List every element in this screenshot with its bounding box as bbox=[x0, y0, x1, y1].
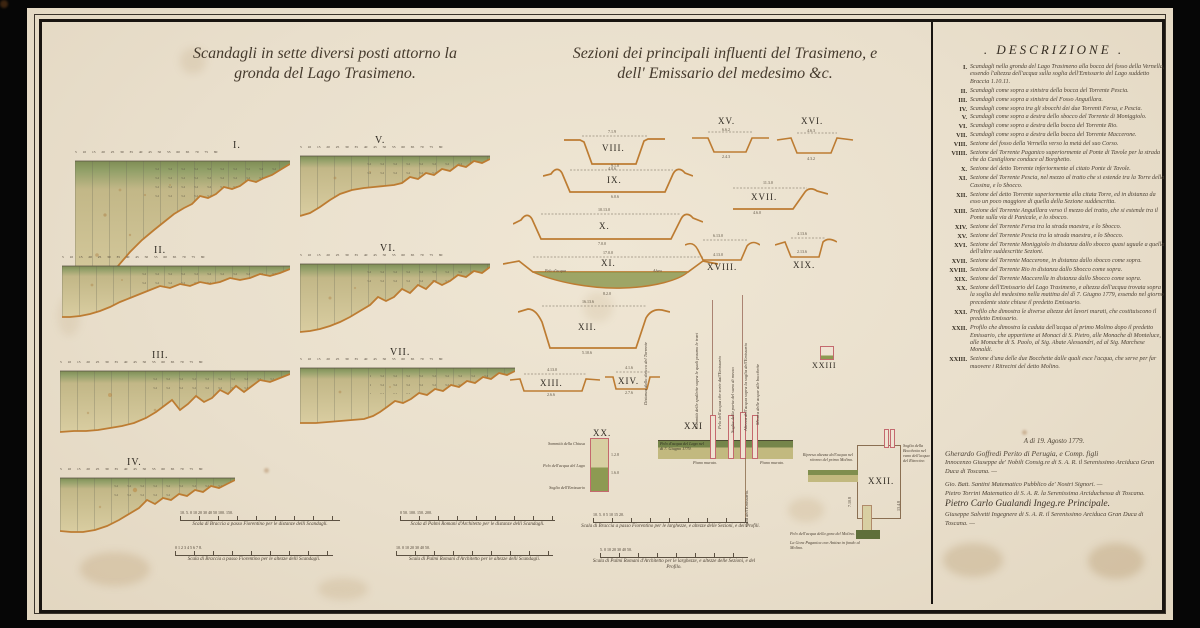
section-xiii: 4.13.0 XIII. 2.6.6 bbox=[510, 370, 600, 398]
xxi-rotated-note-1: Sommità delle spallette sopra le quali p… bbox=[694, 333, 699, 429]
signature-line: Gherardo Goffredi Perito di Perugia, e C… bbox=[945, 449, 1163, 458]
entry-numeral: XXIII. bbox=[943, 356, 967, 371]
scale-bar-palmi-altezze: 10. 0 10 20 30 40 50. Scala di Palmi Rom… bbox=[396, 545, 553, 571]
entry-text: Sezione dell'Emissario del Lago Trasimen… bbox=[970, 285, 1165, 307]
signature-line: Gio. Batt. Santini Matematico Pubblico d… bbox=[945, 480, 1163, 489]
section-drawing bbox=[775, 126, 855, 164]
section-x: 10.13.0 X. 7.0.0 bbox=[513, 208, 703, 248]
description-entry: VIIII. Sezione del Torrente Paganico sup… bbox=[943, 150, 1165, 165]
signature-block: A dì 19. Agosto 1779. Gherardo Goffredi … bbox=[945, 437, 1163, 528]
section-xxiii-label: XXIII bbox=[812, 361, 837, 370]
entry-numeral: XIII. bbox=[943, 208, 967, 223]
xxii-right-note: Soglia della Bocchetta nel vano dell'acq… bbox=[903, 443, 935, 463]
entry-numeral: XVI. bbox=[943, 242, 967, 257]
xxi-rotated-note-5: Misura delle acque alle bocchette bbox=[755, 364, 760, 425]
xx-measure-2: 1.6.0 bbox=[611, 470, 619, 475]
xx-measure-1: 1.2.8 bbox=[611, 452, 619, 457]
profile-drawing bbox=[60, 365, 290, 437]
entry-text: Scandagli come sopra a destra della bocc… bbox=[970, 123, 1165, 130]
description-entry: VI. Scandagli come sopra a destra della … bbox=[943, 123, 1165, 130]
scale-caption: Scala di Braccia a passo Fiorentino per … bbox=[578, 524, 764, 530]
xxii-sluice-mark bbox=[884, 429, 889, 448]
section-label: XVII. bbox=[751, 192, 777, 202]
section-label: XV. bbox=[718, 116, 735, 126]
scale-bar-palmi-sezioni: 5. 0 10 20 30 40 50. Scala di Palmi Roma… bbox=[600, 547, 748, 577]
xxii-measure-left: 7.10.8 bbox=[847, 497, 852, 507]
title-middle-line1: Sezioni dei principali influenti del Tra… bbox=[520, 44, 930, 64]
channel-bed-note: Alveo bbox=[653, 268, 662, 273]
entry-numeral: XV. bbox=[943, 233, 967, 240]
description-entry: XVIII. Sezione del Torrente Rio in dista… bbox=[943, 267, 1165, 274]
entry-text: Scandagli come sopra a sinistra del Foss… bbox=[970, 97, 1165, 104]
waterline-note: Pelo d'acqua bbox=[545, 268, 566, 273]
description-entry: XX. Sezione dell'Emissario del Lago Tras… bbox=[943, 285, 1165, 307]
entry-numeral: XVIII. bbox=[943, 267, 967, 274]
scale-line bbox=[593, 518, 748, 523]
section-label: XIX. bbox=[793, 260, 815, 270]
xxiii-bocchetta-square bbox=[820, 346, 834, 360]
section-label: XII. bbox=[578, 322, 597, 332]
entry-text: Sezione del Torrente Pescia, nel mezzo a… bbox=[970, 175, 1165, 190]
dim-bottom: 4.3.2 bbox=[807, 156, 815, 161]
panel-divider-line bbox=[931, 22, 933, 604]
description-entry: XVI. Sezione del Torrente Moniggiolo in … bbox=[943, 242, 1165, 257]
dim-top: 16.13.6 bbox=[582, 299, 594, 304]
entry-text: Sezione del detto Torrente superiormente… bbox=[970, 192, 1165, 207]
section-label: XIII. bbox=[540, 378, 563, 388]
section-xviii: 6.13.0 4.13.0 XVIII. bbox=[685, 236, 760, 276]
entry-numeral: XXI. bbox=[943, 309, 967, 324]
description-entry: XXII. Profilo che dimostra la caduta del… bbox=[943, 325, 1165, 355]
xx-left-label-1: Sommità della Chiusa bbox=[520, 441, 585, 446]
scale-caption: Scala di Braccia a passo Fiorentino per … bbox=[164, 522, 356, 528]
dim-top: 10.13.0 bbox=[598, 207, 610, 212]
section-drawing bbox=[688, 126, 773, 162]
description-entry: IV. Scandagli come sopra tra gli sbocchi… bbox=[943, 106, 1165, 113]
entry-text: Scandagli come sopra a destra della bocc… bbox=[970, 132, 1165, 139]
description-entry: XVII. Sezione del Torrente Maccerone, in… bbox=[943, 258, 1165, 265]
dim-bottom: 6.0.6 bbox=[611, 194, 619, 199]
entry-text: Sezione del Torrente Maccerella in dista… bbox=[970, 276, 1165, 283]
section-label: XI. bbox=[601, 258, 616, 268]
description-entry: XXI. Profilo che dimostra le diverse alt… bbox=[943, 309, 1165, 324]
xxii-bottom-note-2: La Gora Paganica con Antina in fondo al … bbox=[790, 540, 868, 550]
profile-drawing bbox=[300, 150, 490, 220]
section-xx-label: XX. bbox=[593, 428, 611, 438]
dim-top: 4.6.3 bbox=[807, 128, 815, 133]
dim-top: 4.1.6 bbox=[625, 365, 633, 370]
section-label: X. bbox=[599, 221, 610, 231]
description-entry: XII. Sezione del detto Torrente superior… bbox=[943, 192, 1165, 207]
signature-line: Innocenzo Giuseppe de' Nobili Consig.re … bbox=[945, 458, 1163, 476]
description-entry: XIX. Sezione del Torrente Maccerella in … bbox=[943, 276, 1165, 283]
xxii-bottom-note-1: Pelo dell'acqua della gora del Molino. bbox=[790, 531, 868, 536]
dim-bottom: 8.2.0 bbox=[603, 291, 611, 296]
title-left: Scandagli in sette diversi posti attorno… bbox=[110, 44, 540, 84]
dim-top: 4.13.6 bbox=[797, 231, 807, 236]
entry-numeral: VII. bbox=[943, 132, 967, 139]
description-entry: XI. Sezione del Torrente Pescia, nel mez… bbox=[943, 175, 1165, 190]
xxi-water-level-note: Pelo d'acqua del Lago nel dì 7. Giugno 1… bbox=[660, 441, 704, 451]
xxi-rotated-note-2: Pelo dell'acqua che sorte dall'Emissario bbox=[717, 356, 722, 429]
section-label: XVIII. bbox=[707, 262, 737, 272]
xiii-distance-note: Distanza dallo sbocco del Torrente bbox=[643, 342, 648, 405]
dim-bottom: 2.6.6 bbox=[547, 392, 555, 397]
xxii-gora-strip bbox=[808, 470, 858, 482]
dim-bottom: 2.4.3 bbox=[722, 154, 730, 159]
title-middle-line2: dell' Emissario del medesimo &c. bbox=[520, 64, 930, 84]
xxi-pier bbox=[710, 415, 716, 459]
scale-bar-braccia-sezioni: 10. 5. 0 5 10 15 20. Scala di Braccia a … bbox=[593, 512, 748, 542]
section-xiv: 4.1.6 XIV. 2.7.6 bbox=[605, 368, 660, 396]
description-entry: II. Scandagli come sopra a sinistra dell… bbox=[943, 88, 1165, 95]
entry-text: Profilo che dimostra la caduta dell'acqu… bbox=[970, 325, 1165, 355]
dim-top: 11.3.0 bbox=[763, 180, 773, 185]
section-drawing bbox=[685, 236, 760, 264]
entry-numeral: IV. bbox=[943, 106, 967, 113]
description-entry: XIV. Sezione del Torrente Fersa tra la s… bbox=[943, 224, 1165, 231]
scale-bar-palmi-distanze: 0 50. 100. 150. 200. Scala di Palmi Roma… bbox=[400, 510, 555, 536]
entry-text: Profilo che dimostra le diverse altezze … bbox=[970, 309, 1165, 324]
entry-numeral: VIII. bbox=[943, 141, 967, 148]
xxi-rotated-note-4: Altezza dell'acqua sopra la soglia dell'… bbox=[743, 343, 748, 431]
paper-spot bbox=[0, 0, 8, 8]
dim-bottom: 4.13.0 bbox=[713, 252, 723, 257]
scale-ticks: 5. 0 10 20 30 40 50. bbox=[600, 547, 748, 552]
scale-line bbox=[175, 551, 333, 556]
scale-caption: Scala di Braccia a passo Fiorentino per … bbox=[159, 557, 349, 563]
description-entry: I. Scandagli nella gronda del Lago Trasi… bbox=[943, 64, 1165, 86]
scale-bar-braccia-altezze: 0 1 2 3 4 5 6 7 8. Scala di Braccia a pa… bbox=[175, 545, 333, 571]
xxi-guide-line bbox=[742, 295, 743, 413]
entry-text: Sezione d'una delle due Bocchette dalle … bbox=[970, 356, 1165, 371]
section-xv: XV. 6.6.2 2.4.3 bbox=[688, 118, 773, 162]
sounding-profile-3: III. 5 10 15 20 25 30 35 40 45 50 55 60 … bbox=[60, 351, 290, 439]
section-xix: 4.13.6 2.13.6 XIX. bbox=[775, 234, 837, 276]
scale-ticks: 0 1 2 3 4 5 6 7 8. bbox=[175, 545, 333, 550]
description-entry: III. Scandagli come sopra a sinistra del… bbox=[943, 97, 1165, 104]
entry-text: Sezione del Torrente Maccerone, in dista… bbox=[970, 258, 1165, 265]
description-entries: I. Scandagli nella gronda del Lago Trasi… bbox=[943, 64, 1165, 371]
entry-text: Sezione del Torrente Rio in distanza dal… bbox=[970, 267, 1165, 274]
entry-numeral: VI. bbox=[943, 123, 967, 130]
entry-text: Scandagli come sopra tra gli sbocchi dei… bbox=[970, 106, 1165, 113]
scale-caption: Scala di Palmi Romani d'Architetto per l… bbox=[380, 557, 568, 563]
sounding-profile-5: V. 5 10 15 20 25 30 35 40 45 50 55 60 65… bbox=[300, 136, 490, 222]
scale-line bbox=[600, 553, 748, 558]
entry-text: Sezione del Torrente Fersa tra la strada… bbox=[970, 224, 1165, 231]
scanned-historical-drawing: { "titles": { "left1": "Scandagli in set… bbox=[0, 0, 1200, 628]
signature-date: A dì 19. Agosto 1779. bbox=[945, 437, 1163, 445]
xx-left-label-2: Pelo dell'acqua del Lago bbox=[520, 463, 585, 468]
section-xvi: XVI. 4.6.3 4.3.2 bbox=[775, 118, 855, 164]
scale-ticks: 10. 5. 0 10 20 30 40 50 100. 150. bbox=[180, 510, 340, 515]
title-middle: Sezioni dei principali influenti del Tra… bbox=[520, 44, 930, 84]
title-left-line2: gronda del Lago Trasimeno. bbox=[110, 64, 540, 84]
entry-text: Scandagli nella gronda del Lago Trasimen… bbox=[970, 64, 1165, 86]
scale-caption: Scala di Palmi Romani d'Architetto per l… bbox=[585, 559, 763, 571]
entry-text: Scandagli come sopra a destra dello sboc… bbox=[970, 114, 1165, 121]
description-title: . DESCRIZIONE . bbox=[943, 42, 1165, 58]
entry-text: Scandagli come sopra a sinistra della bo… bbox=[970, 88, 1165, 95]
dim-bottom: 4.6.0 bbox=[753, 210, 761, 215]
sounding-profile-6: VI. 5 10 15 20 25 30 35 40 45 50 55 60 6… bbox=[300, 244, 490, 336]
entry-text: Sezione del fosso della Vernella verso l… bbox=[970, 141, 1165, 148]
sounding-profile-2: II. 5 10 15 20 25 30 35 40 45 50 55 60 6… bbox=[62, 246, 290, 324]
xxi-piano-murato-left: Piano murato. bbox=[693, 460, 717, 465]
section-ix: 9.1.0 IX. 6.0.6 bbox=[543, 164, 693, 202]
entry-numeral: X. bbox=[943, 166, 967, 173]
scale-ticks: 0 50. 100. 150. 200. bbox=[400, 510, 555, 515]
entry-numeral: III. bbox=[943, 97, 967, 104]
entry-text: Sezione del Torrente Anguillara verso il… bbox=[970, 208, 1165, 223]
description-entry: XXIII. Sezione d'una delle due Bocchette… bbox=[943, 356, 1165, 371]
sounding-profile-7: VII. 5 10 15 20 25 30 35 40 45 50 55 60 … bbox=[300, 348, 515, 428]
entry-text: Sezione del detto Torrente inferiormente… bbox=[970, 166, 1165, 173]
dim-top: 9.1.0 bbox=[611, 163, 619, 168]
xxii-sluice-mark bbox=[890, 429, 895, 448]
entry-text: Sezione del Torrente Moniggiolo in dista… bbox=[970, 242, 1165, 257]
scale-line bbox=[396, 551, 553, 556]
entry-text: Sezione del Torrente Pescia tra la strad… bbox=[970, 233, 1165, 240]
section-xvii: 11.3.0 XVII. 4.6.0 bbox=[733, 183, 828, 215]
entry-numeral: XII. bbox=[943, 192, 967, 207]
profile-drawing bbox=[62, 260, 290, 322]
scale-bar-braccia-distanze: 10. 5. 0 10 20 30 40 50 100. 150. Scala … bbox=[180, 510, 340, 536]
profile-drawing bbox=[300, 258, 490, 336]
entry-numeral: XIV. bbox=[943, 224, 967, 231]
signature-line: Pietro Torrini Matematico di S. A. R. la… bbox=[945, 489, 1163, 498]
xxi-rotated-note-3: Soglia della porta del vano di mezzo bbox=[730, 367, 735, 433]
dim-bottom: 7.0.0 bbox=[598, 241, 606, 246]
dim-bottom: 2.13.6 bbox=[797, 249, 807, 254]
description-panel: . DESCRIZIONE . I. Scandagli nella grond… bbox=[943, 42, 1165, 373]
section-xxii-label: XXII. bbox=[868, 476, 894, 486]
section-label: XVI. bbox=[801, 116, 823, 126]
dim-bottom: 2.7.6 bbox=[625, 390, 633, 395]
xxi-piano-murato-right: Piano murato. bbox=[760, 460, 784, 465]
description-entry: XIII. Sezione del Torrente Anguillara ve… bbox=[943, 208, 1165, 223]
section-label: XIV. bbox=[618, 376, 639, 386]
scale-caption: Scala di Palmi Romani d'Architetto per l… bbox=[385, 522, 571, 528]
dim-top: 4.13.0 bbox=[547, 367, 557, 372]
description-entry: V. Scandagli come sopra a destra dello s… bbox=[943, 114, 1165, 121]
entry-numeral: V. bbox=[943, 114, 967, 121]
xxii-measure-right: 13.4.8 bbox=[896, 501, 901, 511]
description-entry: VII. Scandagli come sopra a destra della… bbox=[943, 132, 1165, 139]
dim-top: 6.6.2 bbox=[722, 127, 730, 132]
dim-top: 6.13.0 bbox=[713, 233, 723, 238]
signature-line: Giuseppe Salvetti Ingegnere di S. A. R. … bbox=[945, 510, 1163, 528]
section-label: IX. bbox=[607, 175, 622, 185]
section-xx-column bbox=[590, 438, 609, 492]
scale-ticks: 10. 0 10 20 30 40 50. bbox=[396, 545, 553, 550]
entry-text: Sezione del Torrente Paganico superiorme… bbox=[970, 150, 1165, 165]
entry-numeral: XIX. bbox=[943, 276, 967, 283]
signature-line-main: Pietro Carlo Gualandi Ingeg.re Principal… bbox=[945, 498, 1163, 510]
dim-top: 7.1.9 bbox=[608, 129, 616, 134]
description-entry: X. Sezione del detto Torrente inferiorme… bbox=[943, 166, 1165, 173]
description-entry: XV. Sezione del Torrente Pescia tra la s… bbox=[943, 233, 1165, 240]
section-label: VIII. bbox=[602, 143, 625, 153]
entry-numeral: II. bbox=[943, 88, 967, 95]
xxii-left-note: Ripresa altezza dell'acqua nel ritorno d… bbox=[795, 452, 853, 462]
entry-numeral: I. bbox=[943, 64, 967, 86]
scale-line bbox=[180, 516, 340, 521]
xx-left-label-3: Soglia dell'Emissario bbox=[520, 485, 585, 490]
scale-line bbox=[400, 516, 555, 521]
title-left-line1: Scandagli in sette diversi posti attorno… bbox=[110, 44, 540, 64]
dim-bottom: 5.10.6 bbox=[582, 350, 592, 355]
xxi-guide-line bbox=[712, 300, 713, 415]
entry-numeral: XI. bbox=[943, 175, 967, 190]
entry-numeral: XXII. bbox=[943, 325, 967, 355]
profile-drawing bbox=[300, 362, 515, 428]
entry-numeral: XX. bbox=[943, 285, 967, 307]
section-drawing bbox=[733, 183, 828, 215]
entry-numeral: VIIII. bbox=[943, 150, 967, 165]
dim-top: 17.0.0 bbox=[603, 250, 613, 255]
entry-numeral: XVII. bbox=[943, 258, 967, 265]
description-entry: VIII. Sezione del fosso della Vernella v… bbox=[943, 141, 1165, 148]
scale-ticks: 10. 5. 0 5 10 15 20. bbox=[593, 512, 748, 517]
